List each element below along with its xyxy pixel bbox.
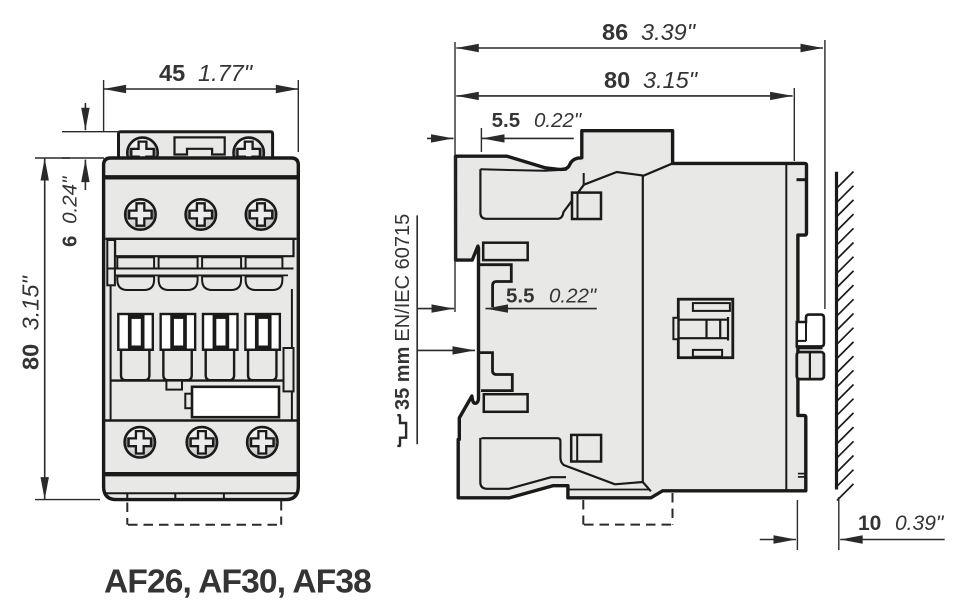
svg-text:0.22": 0.22" bbox=[549, 285, 598, 308]
svg-text:5.5: 5.5 bbox=[506, 285, 535, 308]
svg-text:0.39": 0.39" bbox=[895, 512, 945, 535]
svg-text:35 mmEN/IEC 60715: 35 mmEN/IEC 60715 bbox=[392, 214, 414, 410]
svg-text:10: 10 bbox=[858, 512, 881, 535]
svg-text:1.77": 1.77" bbox=[198, 60, 254, 86]
svg-text:3.15": 3.15" bbox=[643, 67, 699, 93]
svg-text:86: 86 bbox=[602, 19, 628, 45]
svg-text:3.39": 3.39" bbox=[641, 19, 697, 45]
svg-text:80 3.15": 80 3.15" bbox=[18, 275, 44, 370]
svg-text:AF26, AF30, AF38: AF26, AF30, AF38 bbox=[104, 563, 371, 600]
svg-text:6 0.24": 6 0.24" bbox=[59, 175, 82, 247]
svg-text:0.22": 0.22" bbox=[534, 109, 583, 132]
svg-text:80: 80 bbox=[604, 67, 630, 93]
svg-text:5.5: 5.5 bbox=[492, 109, 520, 132]
svg-text:45: 45 bbox=[159, 60, 185, 86]
